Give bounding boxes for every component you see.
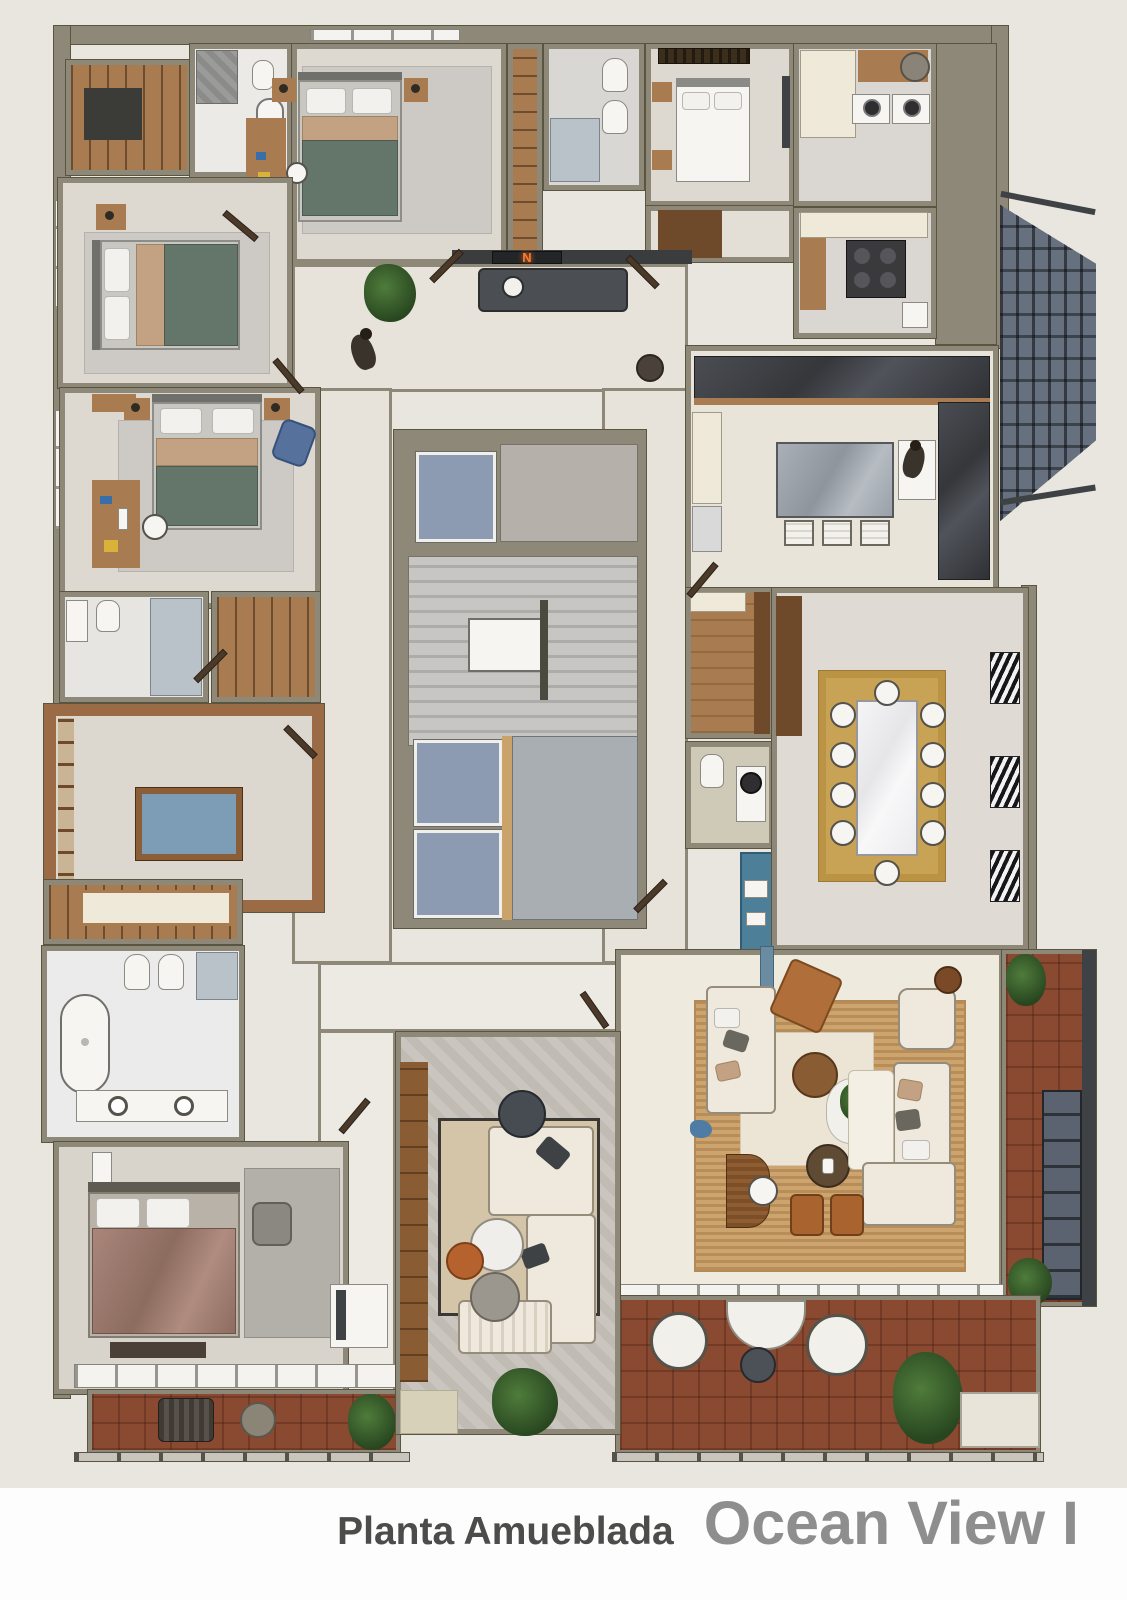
- desk-item-yellow: [104, 540, 118, 552]
- wood-wall-unit: [400, 1062, 428, 1382]
- wall-shelving: [58, 718, 74, 898]
- lamp: [131, 403, 140, 412]
- bed-throw: [136, 244, 166, 346]
- window-blind: [990, 652, 1020, 704]
- bed-pillow: [96, 1198, 140, 1228]
- bed-pillow: [104, 296, 130, 340]
- dining-chair: [920, 742, 946, 768]
- closet-island: [80, 890, 232, 926]
- dining-chair: [830, 782, 856, 808]
- sofa-pillow-tan: [896, 1078, 923, 1102]
- washer-door: [863, 99, 881, 117]
- kitchen-counter-east: [938, 402, 990, 580]
- coffee-grinder: [746, 912, 766, 926]
- caption-band: Planta Amueblada Ocean View I: [0, 1488, 1127, 1600]
- elevator-cab: [414, 740, 502, 826]
- fire-escape-structure: [1000, 168, 1096, 536]
- sofa-cushions: [848, 1070, 894, 1170]
- terrace-railing: [74, 1452, 410, 1462]
- stair-landing: [468, 618, 546, 672]
- elevator-shaft: [512, 736, 638, 920]
- lamp: [271, 403, 280, 412]
- desk-chair: [142, 514, 168, 540]
- candle: [822, 1158, 834, 1174]
- billiard-table: [136, 788, 242, 860]
- counter: [800, 212, 928, 238]
- kitchen-island: [776, 442, 894, 518]
- bed-pillow: [212, 408, 254, 434]
- plant: [492, 1368, 558, 1436]
- bidet: [602, 100, 628, 134]
- water-heater: [900, 52, 930, 82]
- lamp: [105, 211, 114, 220]
- bed-quilt: [302, 140, 398, 216]
- tub-drain: [81, 1038, 89, 1046]
- potted-plant: [364, 264, 416, 322]
- dining-chair: [874, 860, 900, 886]
- round-lounge-chair: [650, 1312, 708, 1370]
- coffee-table-gray: [470, 1272, 520, 1322]
- sink: [108, 1096, 128, 1116]
- stove: [846, 240, 906, 298]
- burner: [854, 272, 870, 288]
- tv: [336, 1290, 346, 1340]
- round-mirror: [740, 772, 762, 794]
- nightstand: [652, 150, 672, 170]
- side-table: [740, 1347, 776, 1383]
- blue-tray: [690, 1120, 712, 1138]
- dark-blinds: [658, 48, 750, 64]
- leather-ottoman: [790, 1194, 824, 1236]
- burner: [854, 248, 870, 264]
- terrace-railing: [612, 1452, 1044, 1462]
- bed-headboard: [88, 1182, 240, 1192]
- armchair: [898, 988, 956, 1050]
- dining-wardrobe: [776, 596, 802, 736]
- toilet: [602, 58, 628, 92]
- side-table-orange: [446, 1242, 484, 1280]
- nightstand: [652, 82, 672, 102]
- pantry-wardrobe: [754, 592, 770, 734]
- double-vanity: [76, 1090, 228, 1122]
- person-head: [910, 440, 921, 451]
- lamp: [411, 84, 420, 93]
- closet-shadow: [84, 88, 142, 140]
- plant: [348, 1394, 396, 1450]
- floor-mat: [400, 1390, 458, 1434]
- bed-throw: [156, 438, 258, 466]
- media-console: [478, 268, 628, 312]
- dining-chair: [920, 782, 946, 808]
- dining-table: [856, 700, 918, 856]
- toilet: [96, 600, 120, 632]
- armchair: [252, 1202, 292, 1246]
- bed-bench: [110, 1342, 206, 1358]
- bed-headboard: [152, 394, 262, 402]
- bed-headboard: [92, 240, 100, 350]
- entry-sign: N: [492, 251, 562, 264]
- elevator-cab: [416, 452, 496, 542]
- toilet: [252, 60, 274, 90]
- sofa-right-chaise: [862, 1162, 956, 1226]
- plant: [893, 1352, 963, 1444]
- glass-shower: [150, 598, 202, 696]
- toilet: [700, 754, 724, 788]
- lamp: [279, 84, 288, 93]
- fridge: [692, 506, 722, 552]
- window-blind: [990, 756, 1020, 808]
- glass-shower: [196, 952, 238, 1000]
- pantry-cabinet: [690, 592, 746, 612]
- linen-closet-corridor: [508, 44, 542, 262]
- floor-plan-stage: N: [0, 0, 1127, 1600]
- stair-handrail: [540, 600, 548, 700]
- rug: [244, 1168, 340, 1338]
- round-table: [240, 1402, 276, 1438]
- leather-ottoman: [830, 1194, 864, 1236]
- bed-pillow: [714, 92, 742, 110]
- burner: [880, 248, 896, 264]
- side-stool-leather: [934, 966, 962, 994]
- round-ottoman: [498, 1090, 546, 1138]
- espresso-machine: [744, 880, 768, 898]
- hall-closet: [212, 592, 320, 702]
- planter-box: [960, 1392, 1040, 1448]
- bar-stool: [784, 520, 814, 546]
- stool: [636, 354, 664, 382]
- shower: [196, 50, 238, 104]
- coffee-bar: [740, 852, 774, 952]
- bed-pillow: [352, 88, 392, 114]
- bar-stool: [860, 520, 890, 546]
- wall-top: [58, 26, 1008, 44]
- sofa-pillow: [902, 1140, 930, 1160]
- bed-headboard: [676, 78, 750, 86]
- media-wall: [452, 250, 692, 264]
- bed-pillow: [160, 408, 202, 434]
- entry-sign-letter: N: [522, 250, 531, 265]
- desk-chair: [748, 1176, 778, 1206]
- bed-pillow: [682, 92, 710, 110]
- sink: [902, 302, 928, 328]
- sofa-pillow: [714, 1008, 740, 1028]
- dining-chair: [874, 680, 900, 706]
- vanity: [66, 600, 88, 642]
- bed-pillow: [146, 1198, 190, 1228]
- bed-quilt: [156, 466, 258, 526]
- window-top-1: [310, 29, 460, 41]
- blue-door: [760, 946, 774, 990]
- bed-throw: [302, 116, 398, 142]
- person-head: [360, 328, 372, 340]
- balcony-frame: [1082, 950, 1096, 1306]
- counter-side: [800, 238, 826, 310]
- dining-chair: [920, 820, 946, 846]
- round-lounge-chair: [806, 1314, 868, 1376]
- desk-monitor: [118, 508, 128, 530]
- glass-shower: [550, 118, 600, 182]
- elevator-lobby: [500, 444, 638, 542]
- bed-pillow: [104, 248, 130, 292]
- bar-stool: [822, 520, 852, 546]
- paper-stand: [92, 1152, 112, 1186]
- toilet: [124, 954, 150, 990]
- shaft-wood-strip: [502, 736, 512, 920]
- desk-item-blue: [100, 496, 112, 504]
- caption-label: Planta Amueblada: [337, 1510, 674, 1554]
- desk: [92, 480, 140, 568]
- sectional-chaise: [488, 1126, 594, 1216]
- dining-chair: [830, 742, 856, 768]
- window-blind: [990, 850, 1020, 902]
- wall-shaft-topright: [936, 44, 996, 344]
- bed-pillow: [306, 88, 346, 114]
- lounge-chair: [158, 1398, 214, 1442]
- dryer-door: [903, 99, 921, 117]
- window-band-master: [74, 1364, 396, 1388]
- fire-escape-rail-top: [1000, 191, 1095, 215]
- tv-panel: [782, 76, 790, 148]
- bidet: [158, 954, 184, 990]
- burner: [880, 272, 896, 288]
- plant: [1006, 954, 1046, 1006]
- laundry-counter: [800, 50, 856, 138]
- desk-item-blue: [256, 152, 266, 160]
- dining-chair: [830, 702, 856, 728]
- sink: [174, 1096, 194, 1116]
- bed-quilt: [164, 244, 238, 346]
- tall-cabinet: [692, 412, 722, 504]
- caption-title: Ocean View I: [704, 1488, 1079, 1558]
- kitchen-counter-north: [694, 356, 990, 402]
- bed-quilt-mauve: [92, 1228, 236, 1334]
- sofa-pillow-dark: [895, 1108, 922, 1131]
- elevator-cab: [414, 830, 502, 918]
- dining-chair: [920, 702, 946, 728]
- console-compass-decor: [502, 276, 524, 298]
- dining-chair: [830, 820, 856, 846]
